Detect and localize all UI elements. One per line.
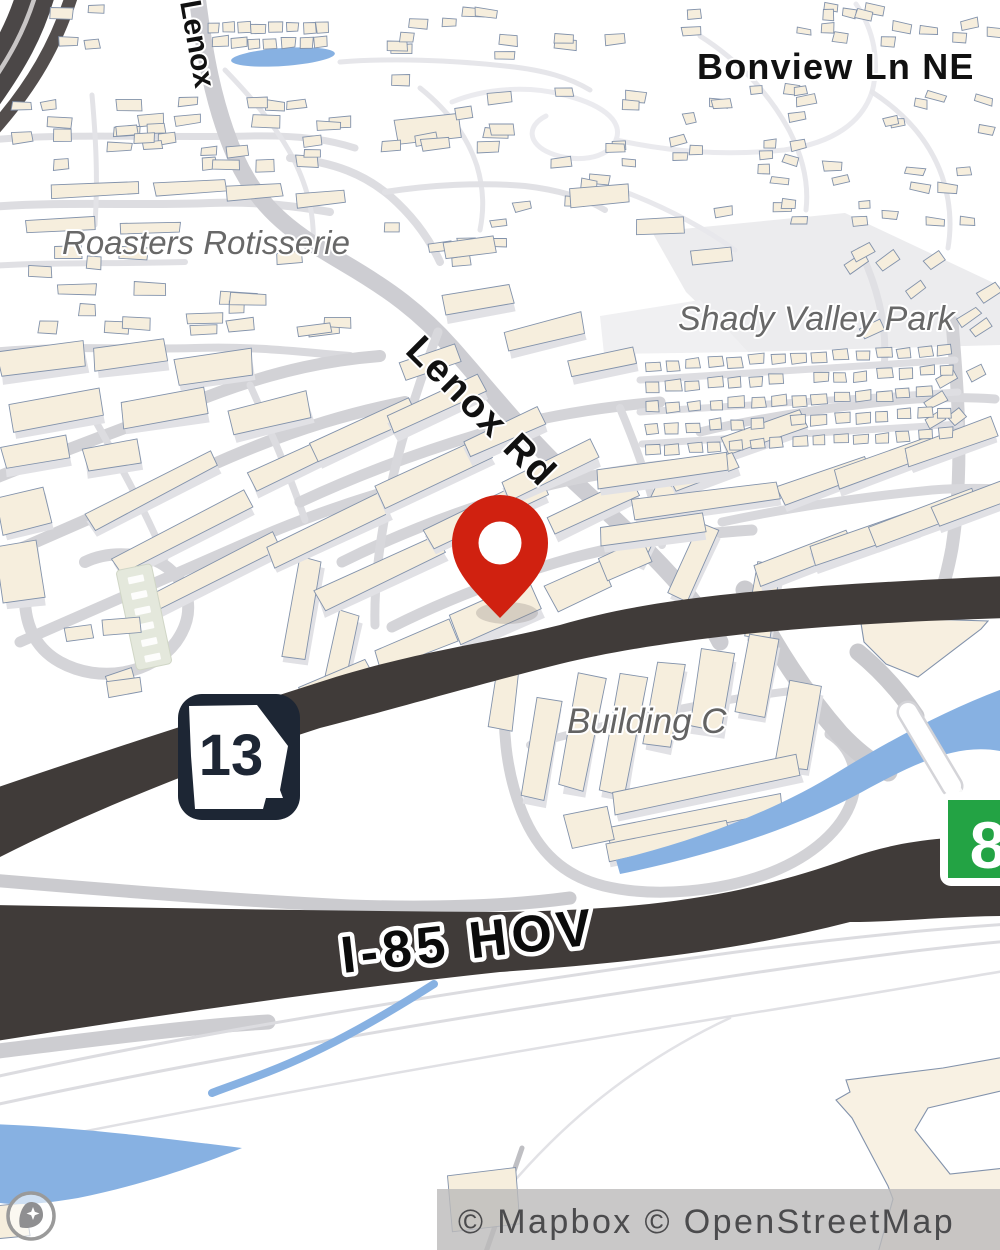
svg-text:8: 8 [970,808,1000,882]
svg-text:Roasters Rotisserie: Roasters Rotisserie [62,224,350,261]
svg-text:Shady Valley Park: Shady Valley Park [678,300,957,338]
svg-text:© Mapbox © OpenStreetMap: © Mapbox © OpenStreetMap [458,1203,955,1241]
svg-text:Bonview Ln NE: Bonview Ln NE [697,46,975,87]
svg-text:Building C: Building C [567,702,727,741]
svg-text:13: 13 [199,723,264,788]
